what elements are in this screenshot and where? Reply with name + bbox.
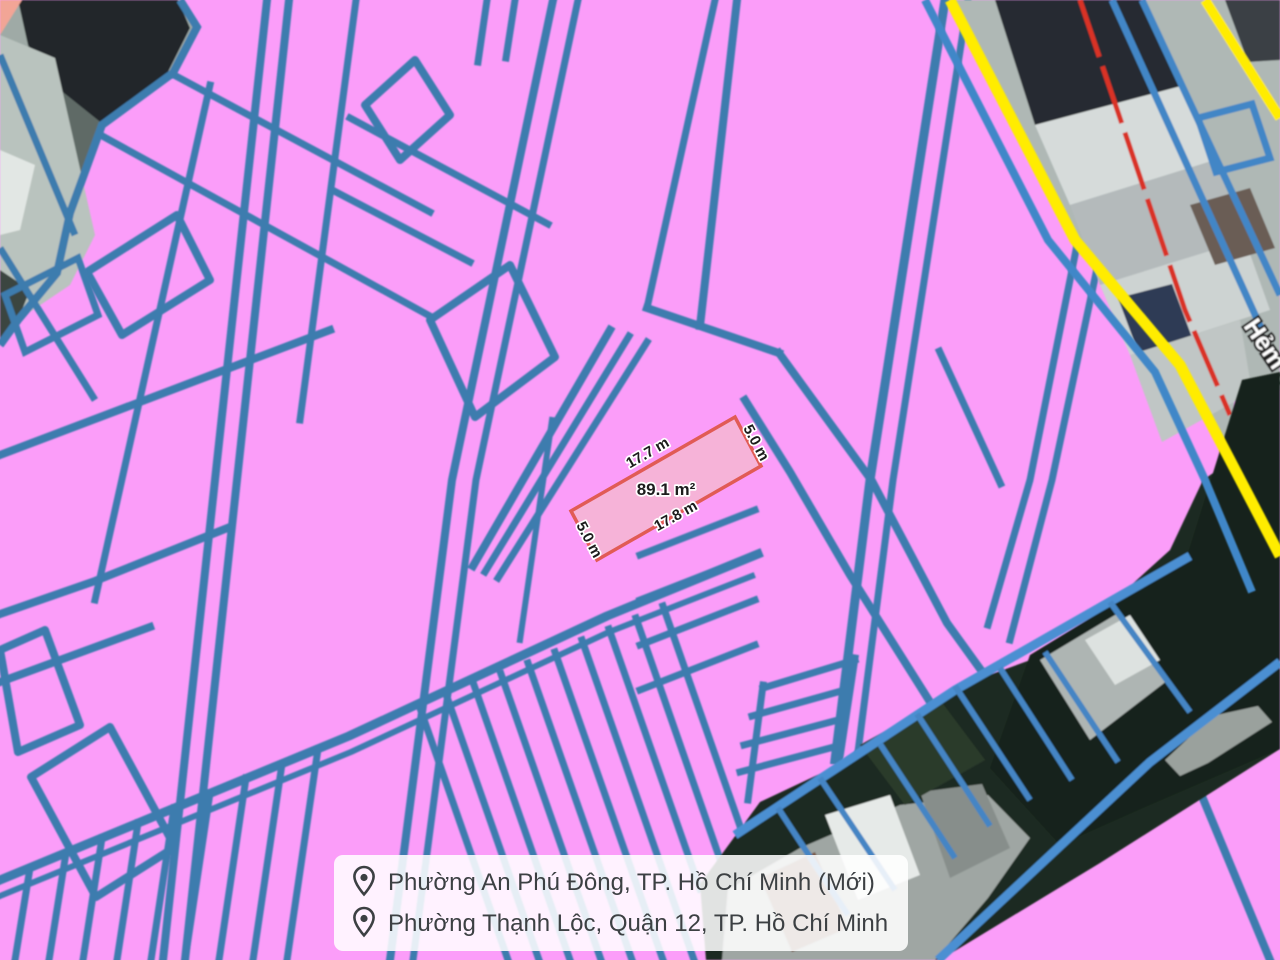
svg-text:89.1 m²: 89.1 m² bbox=[637, 480, 696, 499]
svg-text:Phường Thạnh Lộc, Quận 12, TP.: Phường Thạnh Lộc, Quận 12, TP. Hồ Chí Mi… bbox=[388, 910, 888, 937]
svg-text:Phường An Phú Đông, TP. Hồ Chí: Phường An Phú Đông, TP. Hồ Chí Minh (Mới… bbox=[388, 869, 875, 896]
